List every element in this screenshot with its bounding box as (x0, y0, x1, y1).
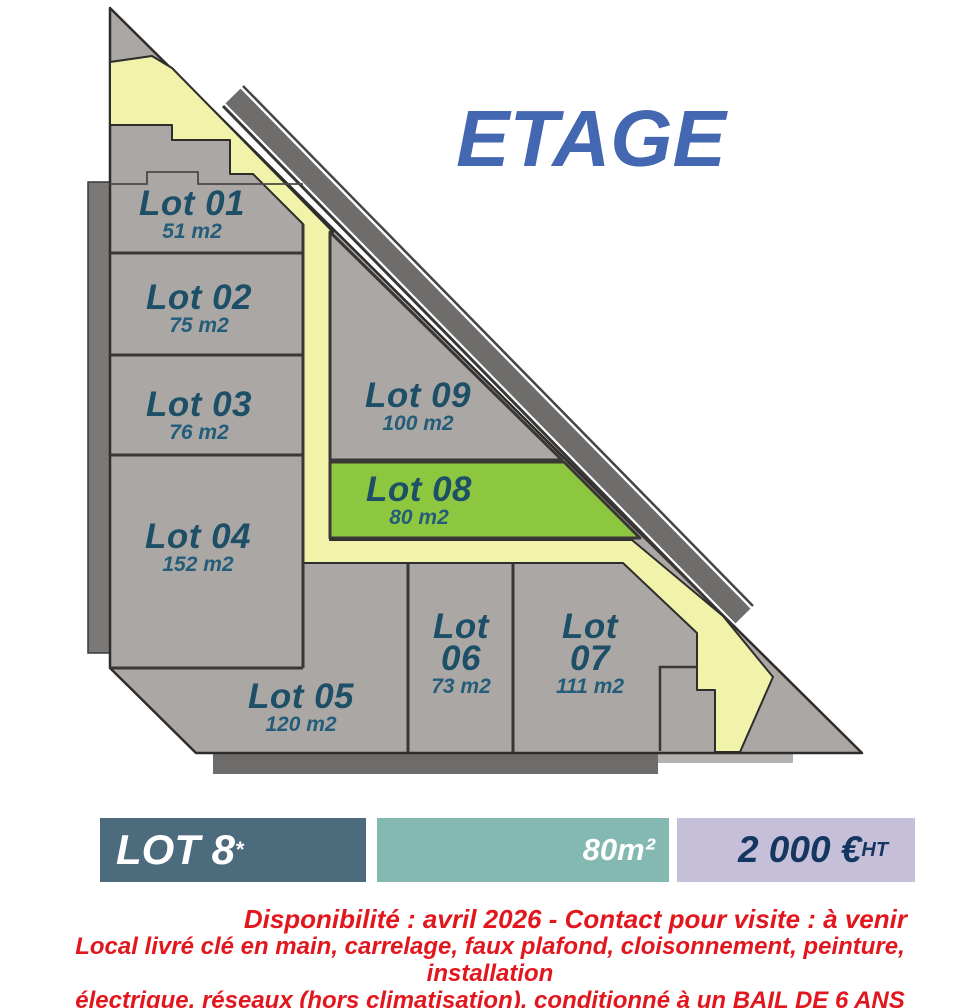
notes-block: Disponibilité : avril 2026 - Contact pou… (35, 905, 945, 1008)
legend-lot-name: LOT 8* (100, 818, 366, 882)
sidewalk-strip-light (658, 754, 793, 763)
left-wall-bar (88, 182, 110, 653)
legend-lot-area: 80m² (377, 818, 669, 882)
conditions-note-line1: Local livré clé en main, carrelage, faux… (35, 933, 945, 987)
page-title: ETAGE (456, 93, 726, 185)
sidewalk-strip (213, 754, 658, 774)
lot-09-shape (330, 232, 562, 460)
asterisk: * (235, 837, 244, 863)
price-tax-suffix: HT (861, 839, 888, 862)
legend-lot-price: 2 000 €HT (677, 818, 915, 882)
floor-plan-page: ETAGE Lot 01 51 m2 Lot 02 75 m2 Lot 03 7… (0, 0, 980, 1008)
availability-note: Disponibilité : avril 2026 - Contact pou… (35, 905, 945, 933)
conditions-note-line2: électrique, réseaux (hors climatisation)… (35, 987, 945, 1008)
